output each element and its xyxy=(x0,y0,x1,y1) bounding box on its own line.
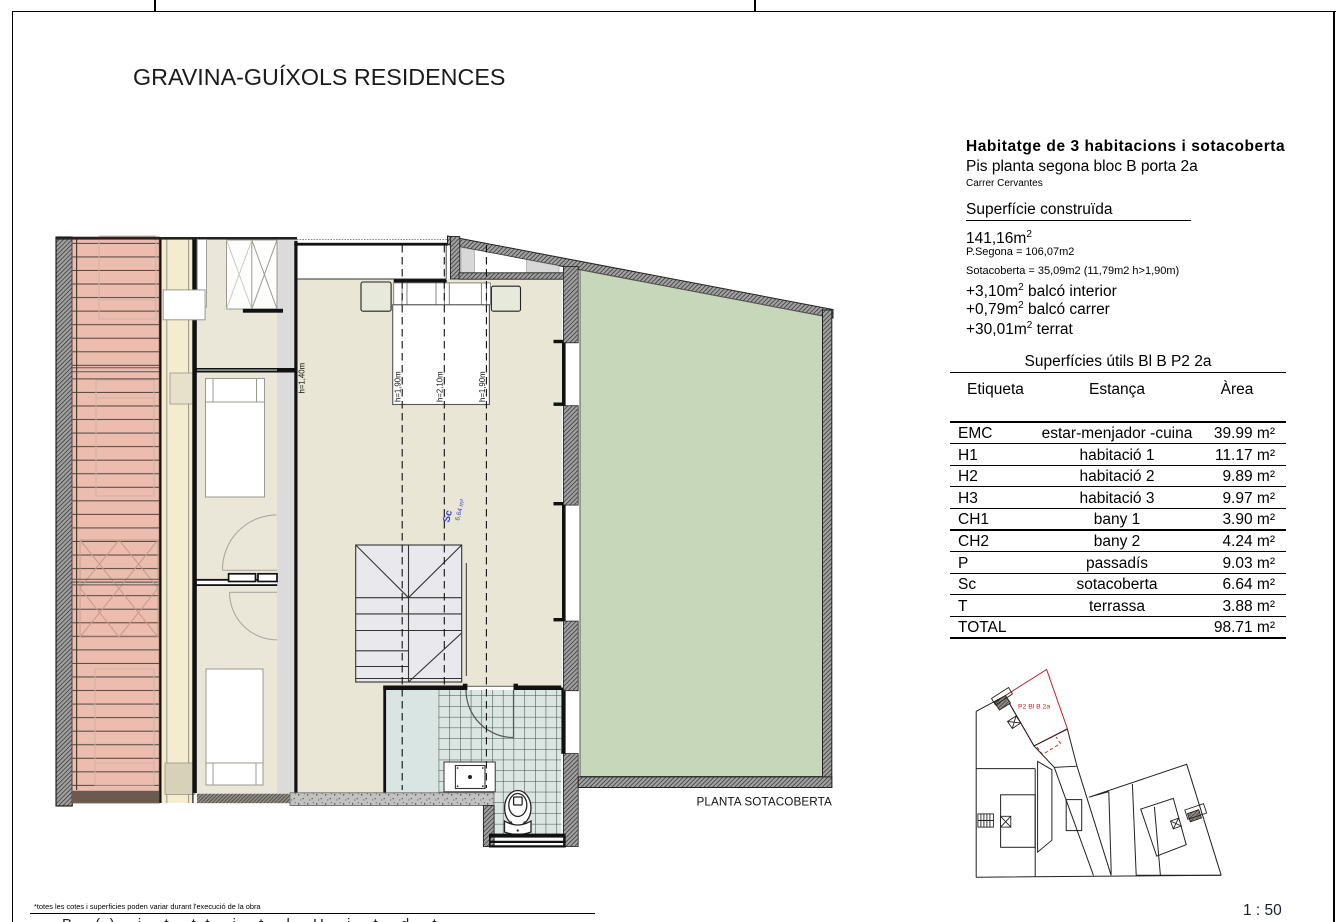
svg-text:h=1,40m: h=1,40m xyxy=(298,363,307,394)
svg-text:h=1,90m: h=1,90m xyxy=(394,371,403,402)
svg-text:h=1,90m: h=1,90m xyxy=(478,371,487,402)
svg-text:P2 Bl B 2a: P2 Bl B 2a xyxy=(1018,704,1050,711)
svg-text:h=2,10m: h=2,10m xyxy=(436,371,445,402)
svg-text:PLANTA SOTACOBERTA: PLANTA SOTACOBERTA xyxy=(697,796,832,809)
